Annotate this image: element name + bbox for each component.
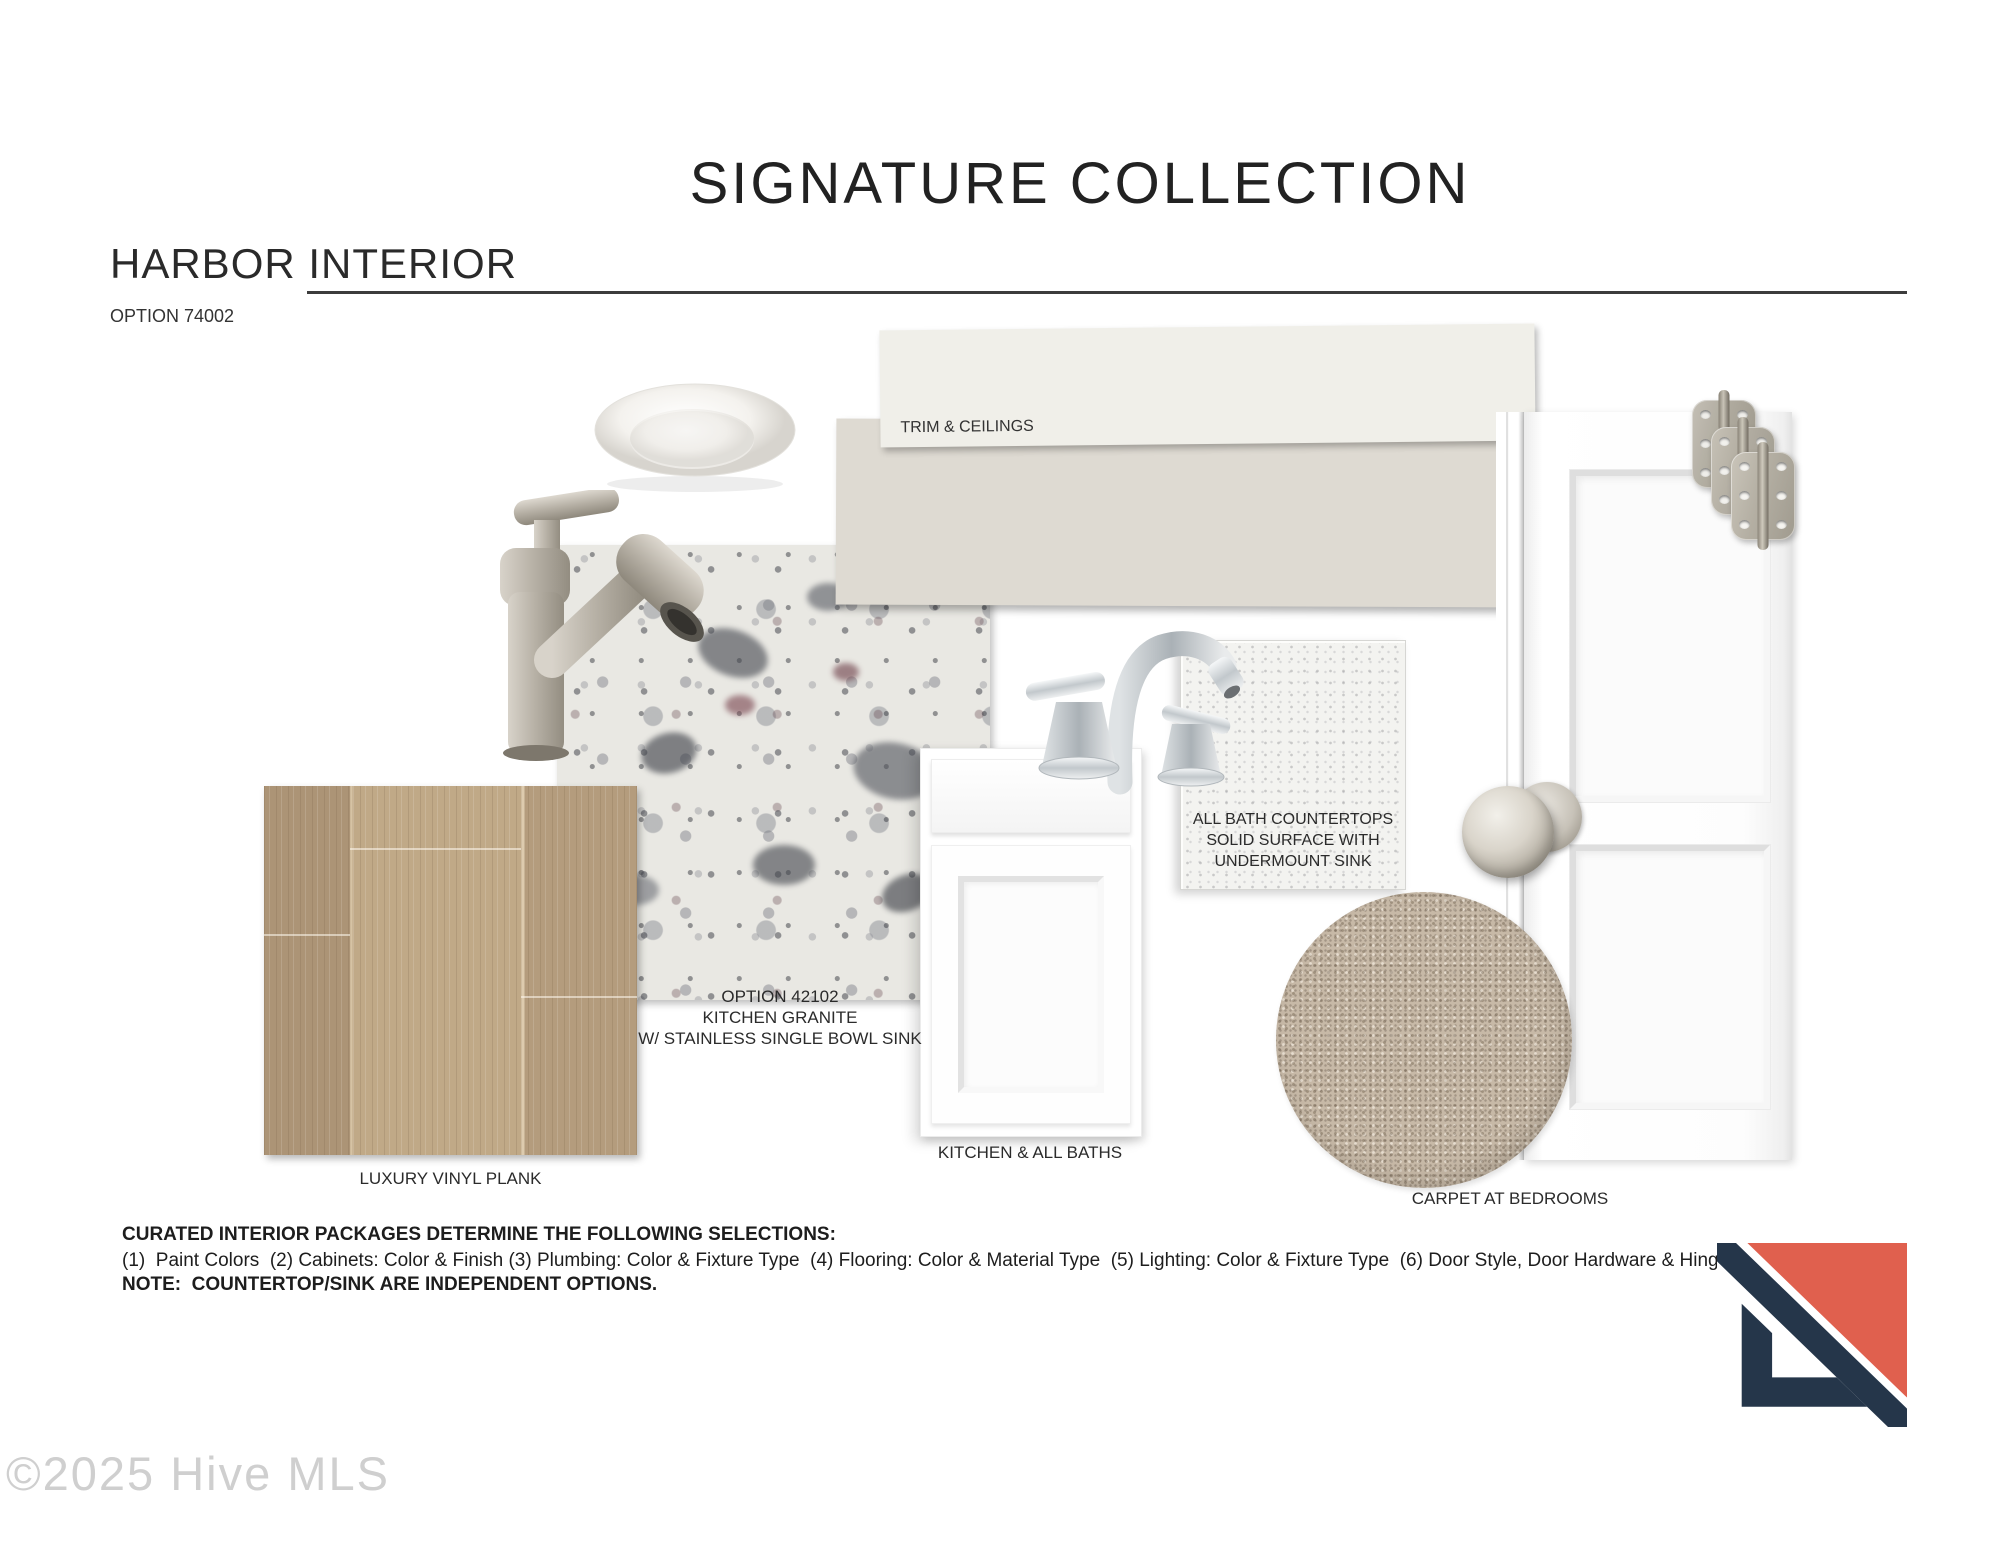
granite-caption-line2: KITCHEN GRANITE xyxy=(580,1007,980,1028)
page-title: SIGNATURE COLLECTION xyxy=(160,150,2000,217)
door-bottom-panel xyxy=(1570,845,1770,1109)
option-number: OPTION 74002 xyxy=(110,306,234,327)
carpet-label: CARPET AT BEDROOMS xyxy=(1360,1188,1660,1209)
wall-paint-swatch xyxy=(836,418,1537,607)
lvp-flooring-swatch xyxy=(264,786,637,1155)
ceiling-light-image xyxy=(588,380,802,495)
cabinet-label: KITCHEN & ALL BATHS xyxy=(900,1142,1160,1163)
design-board: SIGNATURE COLLECTION HARBOR INTERIOR OPT… xyxy=(0,0,2000,1545)
door-knob-image xyxy=(1462,786,1554,878)
granite-caption-line1: OPTION 42102 xyxy=(580,986,980,1007)
title-underline xyxy=(307,291,1907,294)
lvp-flooring-label: LUXURY VINYL PLANK xyxy=(264,1168,637,1189)
granite-caption-line3: W/ STAINLESS SINGLE BOWL SINK xyxy=(580,1028,980,1049)
bath-faucet-image xyxy=(1020,606,1260,796)
carpet-swatch xyxy=(1276,892,1572,1188)
door-hinge-icon xyxy=(1731,452,1795,540)
kitchen-faucet-image xyxy=(480,490,712,766)
brand-logo xyxy=(1717,1243,1907,1427)
watermark: ©2025 Hive MLS xyxy=(6,1446,390,1501)
footer-selections: (1) Paint Colors (2) Cabinets: Color & F… xyxy=(122,1250,1739,1272)
collection-title: HARBOR INTERIOR xyxy=(110,240,517,288)
trim-ceilings-swatch: TRIM & CEILINGS xyxy=(879,324,1535,448)
trim-ceilings-label: TRIM & CEILINGS xyxy=(900,418,1034,437)
cabinet-sample-image xyxy=(920,748,1142,1137)
cabinet-door-front xyxy=(931,845,1131,1124)
cabinet-door-panel xyxy=(958,876,1104,1093)
footer-note: NOTE: COUNTERTOP/SINK ARE INDEPENDENT OP… xyxy=(122,1274,657,1296)
bath-countertop-label: ALL BATH COUNTERTOPS SOLID SURFACE WITH … xyxy=(1181,809,1405,872)
footer-heading: CURATED INTERIOR PACKAGES DETERMINE THE … xyxy=(122,1224,836,1246)
granite-caption: OPTION 42102 KITCHEN GRANITE W/ STAINLES… xyxy=(580,986,980,1049)
